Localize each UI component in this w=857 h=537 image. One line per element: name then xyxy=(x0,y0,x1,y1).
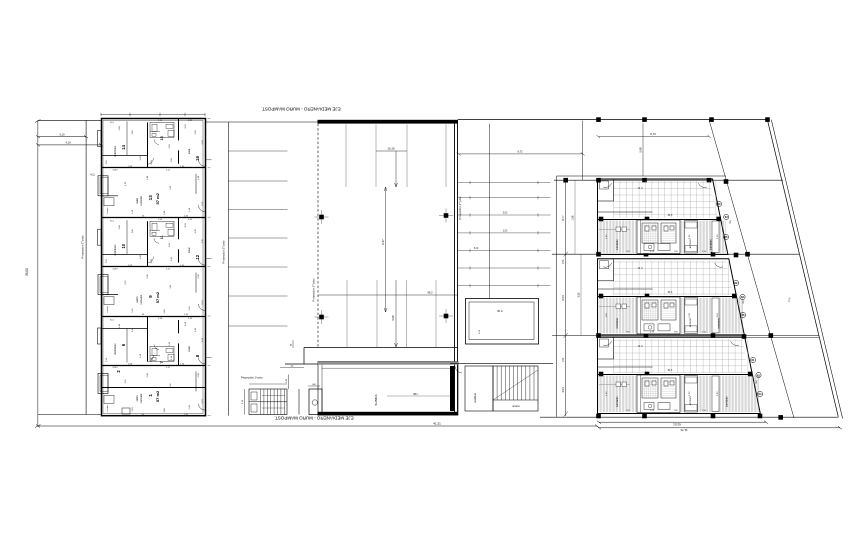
svg-text:7: 7 xyxy=(160,361,164,363)
svg-text:vestíbulo: vestíbulo xyxy=(474,393,477,403)
svg-text:salón: salón xyxy=(136,395,139,402)
svg-text:62,51: 62,51 xyxy=(673,423,681,427)
svg-text:57 m2: 57 m2 xyxy=(155,192,160,204)
svg-text:30 m: 30 m xyxy=(497,309,503,313)
svg-text:dormitorio: dormitorio xyxy=(114,244,117,256)
svg-text:99,2: 99,2 xyxy=(427,291,433,295)
svg-text:57 m2: 57 m2 xyxy=(155,291,160,303)
svg-text:(2): (2) xyxy=(291,365,294,367)
svg-text:16, 9: 16, 9 xyxy=(637,268,643,270)
svg-text:16, 9: 16, 9 xyxy=(637,346,643,348)
svg-text:dormitorio: dormitorio xyxy=(709,239,712,250)
svg-text:84,5: 84,5 xyxy=(668,215,673,217)
svg-text:Proyección 1º piso: Proyección 1º piso xyxy=(222,240,226,264)
svg-text:8,77: 8,77 xyxy=(561,215,565,221)
svg-text:35,00: 35,00 xyxy=(25,268,29,276)
svg-text:15: 15 xyxy=(160,136,164,140)
svg-text:Proyección 1º piso: Proyección 1º piso xyxy=(312,278,316,302)
svg-text:6,54: 6,54 xyxy=(561,295,565,301)
svg-text:acceso: acceso xyxy=(512,406,520,408)
svg-text:dormitorio: dormitorio xyxy=(616,239,619,250)
svg-text:84,5: 84,5 xyxy=(668,292,673,294)
svg-text:Proyección 1º piso: Proyección 1º piso xyxy=(241,375,263,379)
svg-text:ACCESO: ACCESO xyxy=(689,317,692,327)
svg-text:8,73: 8,73 xyxy=(518,151,523,154)
svg-text:estar: estar xyxy=(188,247,191,253)
svg-text:3,019: 3,019 xyxy=(112,367,118,369)
svg-text:10,19: 10,19 xyxy=(388,147,395,151)
svg-text:84,5: 84,5 xyxy=(668,370,673,372)
svg-text:comedor: comedor xyxy=(140,196,143,206)
svg-text:1,50: 1,50 xyxy=(563,259,565,264)
svg-text:salón: salón xyxy=(136,197,139,204)
svg-text:dormitorio: dormitorio xyxy=(616,396,619,407)
svg-text:41,31: 41,31 xyxy=(433,422,441,426)
svg-text:5,98: 5,98 xyxy=(391,315,395,321)
svg-text:5,98: 5,98 xyxy=(638,147,642,153)
svg-text:cocina: cocina xyxy=(107,306,109,313)
svg-text:cocina: cocina xyxy=(107,207,109,214)
svg-text:57 m2: 57 m2 xyxy=(155,390,160,402)
svg-text:5,20: 5,20 xyxy=(474,248,479,250)
svg-text:dormitorio: dormitorio xyxy=(726,396,729,407)
svg-text:estar: estar xyxy=(188,148,191,154)
svg-text:16, 9: 16, 9 xyxy=(637,188,643,190)
svg-text:(40): (40) xyxy=(312,384,316,386)
svg-text:cocina: cocina xyxy=(107,404,109,411)
svg-text:Proyección 1º piso: Proyección 1º piso xyxy=(458,196,462,220)
svg-text:10: 10 xyxy=(121,243,126,248)
svg-text:13: 13 xyxy=(148,195,153,201)
svg-text:8,27: 8,27 xyxy=(381,239,385,245)
svg-text:8,73: 8,73 xyxy=(650,132,656,136)
svg-text:3,019: 3,019 xyxy=(112,268,118,270)
svg-text:14: 14 xyxy=(121,144,126,149)
svg-text:6,10: 6,10 xyxy=(59,133,65,137)
svg-text:1,50: 1,50 xyxy=(563,357,565,362)
svg-text:estar: estar xyxy=(188,346,191,352)
svg-text:salón: salón xyxy=(136,296,139,303)
svg-text:SUBIDA: SUBIDA xyxy=(374,394,378,405)
svg-text:98 L.: 98 L. xyxy=(413,393,419,396)
svg-text:dormitorio: dormitorio xyxy=(718,317,721,328)
svg-text:4,10: 4,10 xyxy=(65,141,71,145)
svg-text:ACCESO: ACCESO xyxy=(689,396,692,406)
svg-text:16: 16 xyxy=(195,155,200,160)
svg-text:5,00: 5,00 xyxy=(503,213,508,215)
svg-text:3,55: 3,55 xyxy=(578,292,581,297)
svg-text:ACCESO: ACCESO xyxy=(689,239,692,249)
svg-text:4,11: 4,11 xyxy=(90,174,95,177)
svg-text:12: 12 xyxy=(195,254,200,259)
svg-text:4,54: 4,54 xyxy=(561,387,565,393)
svg-text:9: 9 xyxy=(148,295,153,298)
svg-text:2,50: 2,50 xyxy=(503,230,508,232)
svg-text:dormitorio: dormitorio xyxy=(616,317,619,328)
svg-text:comedor: comedor xyxy=(140,295,143,305)
svg-text:EJE MEDIANERO - MURO MAMPOST.: EJE MEDIANERO - MURO MAMPOST. xyxy=(261,107,340,112)
svg-text:Proyección 1º piso: Proyección 1º piso xyxy=(81,235,85,259)
svg-text:1: 1 xyxy=(148,394,153,397)
svg-text:11,71: 11,71 xyxy=(680,428,688,432)
svg-text:dormitorio: dormitorio xyxy=(114,343,117,355)
svg-text:11: 11 xyxy=(160,235,164,239)
svg-text:EJE MEDIANERO - MURO MAMPOST.: EJE MEDIANERO - MURO MAMPOST. xyxy=(274,416,353,421)
svg-text:comedor: comedor xyxy=(140,393,143,403)
svg-text:1,58: 1,58 xyxy=(572,215,575,220)
svg-text:3,019: 3,019 xyxy=(112,170,118,172)
